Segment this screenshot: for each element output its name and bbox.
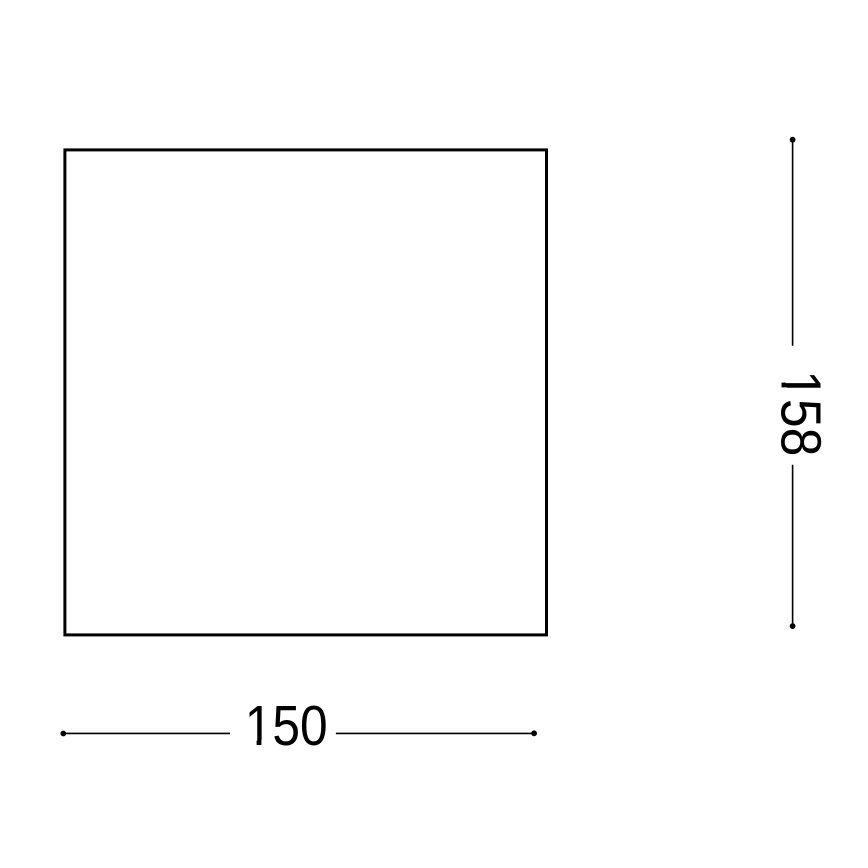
svg-text:150: 150: [245, 695, 328, 758]
svg-text:158: 158: [769, 370, 832, 456]
